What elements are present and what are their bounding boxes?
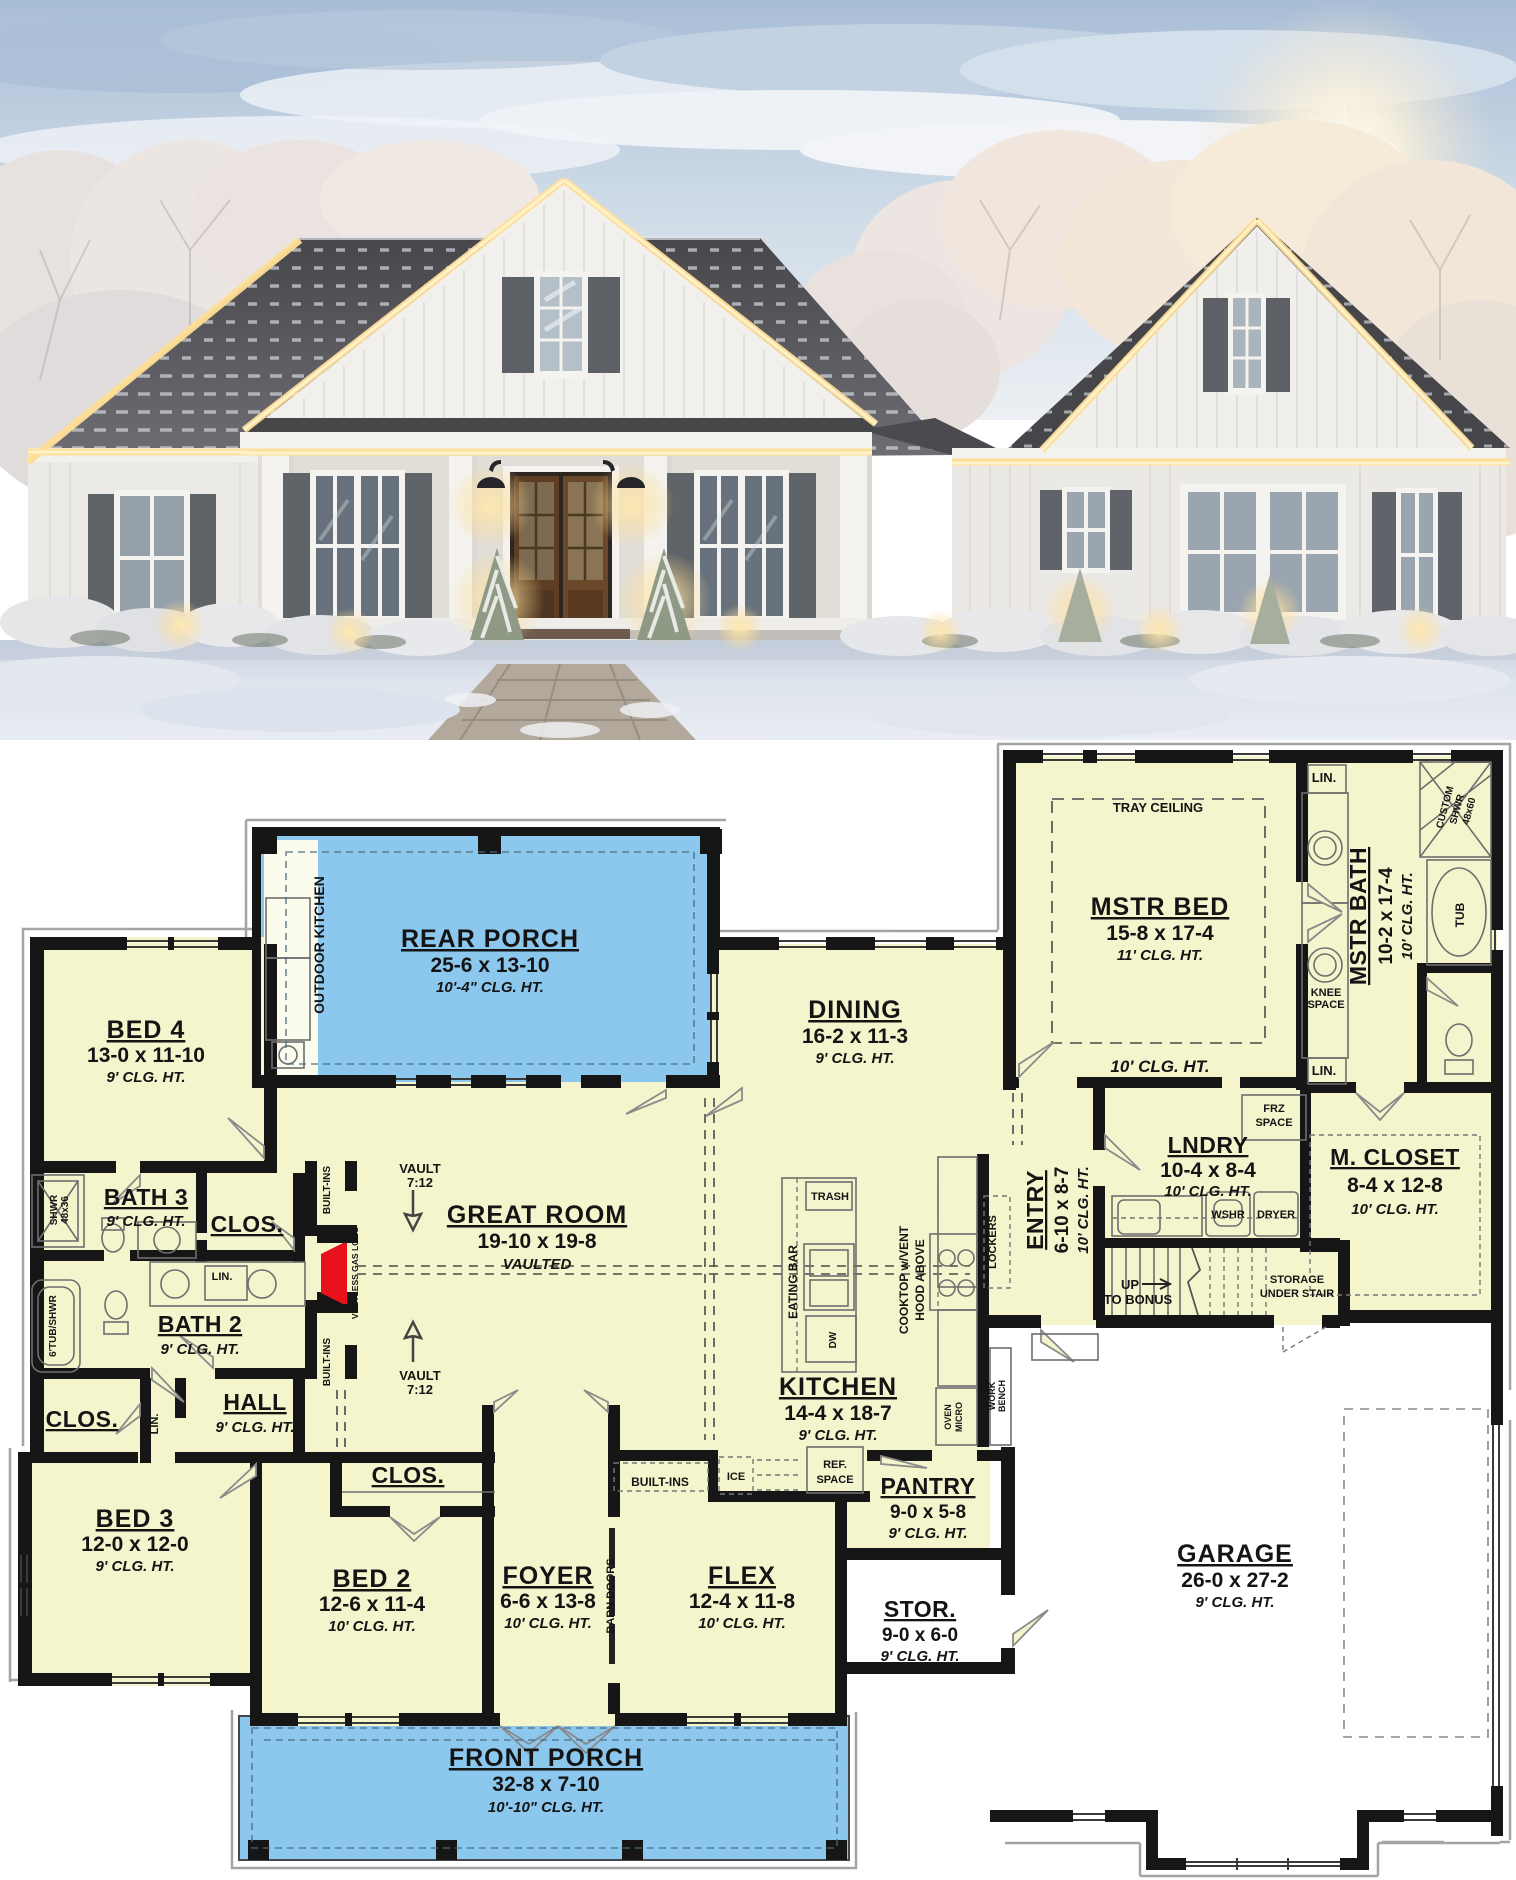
svg-text:FOYER: FOYER [502,1562,593,1590]
svg-text:CLOS.: CLOS. [372,1462,445,1488]
svg-text:REF.: REF. [823,1459,847,1471]
svg-text:BED 3: BED 3 [96,1505,175,1533]
svg-text:CLOS.: CLOS. [211,1211,284,1237]
svg-text:GARAGE: GARAGE [1177,1540,1293,1568]
svg-text:REAR PORCH: REAR PORCH [401,925,579,953]
svg-text:TO BONUS: TO BONUS [1104,1292,1173,1307]
svg-text:UP: UP [1121,1277,1139,1292]
svg-text:10' CLG. HT.: 10' CLG. HT. [1399,872,1416,959]
svg-text:9' CLG. HT.: 9' CLG. HT. [160,1341,239,1358]
svg-text:BATH 2: BATH 2 [158,1311,242,1337]
svg-text:BUILT-INS: BUILT-INS [631,1475,689,1489]
svg-text:VENTLESS GAS LOGS: VENTLESS GAS LOGS [350,1227,360,1319]
svg-text:LIN.: LIN. [212,1271,233,1283]
svg-text:9' CLG. HT.: 9' CLG. HT. [815,1050,894,1067]
svg-text:MICRO: MICRO [954,1402,964,1432]
svg-text:32-8 x 7-10: 32-8 x 7-10 [492,1773,599,1796]
svg-text:9' CLG. HT.: 9' CLG. HT. [880,1648,959,1665]
svg-text:12-4 x 11-8: 12-4 x 11-8 [689,1590,796,1613]
svg-text:LIN.: LIN. [1312,770,1337,785]
svg-text:KNEE: KNEE [1311,987,1342,999]
svg-text:GREAT ROOM: GREAT ROOM [447,1201,627,1229]
svg-text:7:12: 7:12 [407,1175,433,1190]
svg-text:9' CLG. HT.: 9' CLG. HT. [888,1525,967,1542]
svg-text:CLOS.: CLOS. [46,1406,119,1432]
svg-text:EATING BAR: EATING BAR [786,1245,800,1319]
svg-text:15-8 x 17-4: 15-8 x 17-4 [1106,922,1214,945]
svg-text:BENCH: BENCH [997,1380,1007,1412]
svg-text:9' CLG. HT.: 9' CLG. HT. [106,1069,185,1086]
svg-text:6'TUB/SHWR: 6'TUB/SHWR [48,1294,59,1357]
svg-text:10-4 x 8-4: 10-4 x 8-4 [1160,1159,1256,1182]
svg-text:FRZ: FRZ [1263,1103,1285,1115]
svg-text:10'-10" CLG. HT.: 10'-10" CLG. HT. [488,1799,604,1816]
svg-text:SHWR: SHWR [49,1194,60,1225]
svg-text:M. CLOSET: M. CLOSET [1330,1144,1460,1170]
svg-text:TRAY CEILING: TRAY CEILING [1113,800,1203,815]
svg-text:SPACE: SPACE [1255,1117,1292,1129]
svg-text:LNDRY: LNDRY [1168,1132,1249,1158]
svg-text:16-2 x 11-3: 16-2 x 11-3 [802,1025,908,1048]
svg-text:UNDER STAIR: UNDER STAIR [1260,1288,1334,1300]
svg-text:9-0 x 5-8: 9-0 x 5-8 [890,1502,966,1523]
svg-text:STOR.: STOR. [884,1596,956,1622]
svg-text:19-10 x 19-8: 19-10 x 19-8 [477,1230,596,1253]
svg-text:DINING: DINING [808,996,902,1024]
svg-text:WSHR: WSHR [1211,1209,1245,1221]
svg-text:7:12: 7:12 [407,1382,433,1397]
svg-text:12-6 x 11-4: 12-6 x 11-4 [319,1593,426,1616]
svg-text:BUILT-INS: BUILT-INS [322,1166,333,1214]
svg-text:ENTRY: ENTRY [1022,1170,1048,1250]
svg-text:OVEN: OVEN [943,1404,953,1430]
svg-text:25-6 x 13-10: 25-6 x 13-10 [430,954,549,977]
svg-text:10'-4" CLG. HT.: 10'-4" CLG. HT. [436,979,544,996]
svg-text:DRYER: DRYER [1257,1209,1295,1221]
svg-text:13-0 x 11-10: 13-0 x 11-10 [87,1044,205,1067]
svg-text:BARN DOORS: BARN DOORS [605,1558,617,1633]
svg-text:DW: DW [828,1331,839,1348]
svg-text:VAULTED: VAULTED [503,1256,572,1273]
svg-text:8-4 x 12-8: 8-4 x 12-8 [1347,1174,1443,1197]
svg-text:11' CLG. HT.: 11' CLG. HT. [1117,947,1203,964]
svg-text:9' CLG. HT.: 9' CLG. HT. [106,1213,185,1230]
svg-text:FRONT PORCH: FRONT PORCH [449,1744,643,1772]
svg-text:10-2 x 17-4: 10-2 x 17-4 [1376,867,1397,965]
svg-text:MSTR BATH: MSTR BATH [1345,847,1371,985]
svg-text:LOCKERS: LOCKERS [987,1215,999,1269]
svg-text:9' CLG. HT.: 9' CLG. HT. [1195,1594,1274,1611]
svg-text:9' CLG. HT.: 9' CLG. HT. [798,1427,877,1444]
svg-text:26-0 x 27-2: 26-0 x 27-2 [1181,1569,1288,1592]
svg-text:BED 2: BED 2 [333,1565,412,1593]
svg-text:MSTR BED: MSTR BED [1091,893,1230,921]
svg-text:TRASH: TRASH [811,1191,849,1203]
svg-text:BED 4: BED 4 [107,1016,186,1044]
svg-text:OUTDOOR KITCHEN: OUTDOOR KITCHEN [311,876,327,1014]
svg-text:SPACE: SPACE [1307,999,1344,1011]
svg-text:10' CLG. HT.: 10' CLG. HT. [1075,1166,1092,1253]
svg-text:COOKTOP w/VENT: COOKTOP w/VENT [897,1225,911,1334]
svg-text:VAULT: VAULT [399,1161,440,1176]
svg-text:FLEX: FLEX [708,1562,776,1590]
svg-text:HALL: HALL [223,1389,286,1415]
svg-text:VAULT: VAULT [399,1368,440,1383]
svg-text:KITCHEN: KITCHEN [779,1373,897,1401]
svg-text:BUILT-INS: BUILT-INS [322,1338,333,1386]
svg-text:12-0 x 12-0: 12-0 x 12-0 [81,1533,188,1556]
svg-text:10' CLG. HT.: 10' CLG. HT. [1164,1183,1251,1200]
svg-text:10' CLG. HT.: 10' CLG. HT. [328,1618,415,1635]
svg-text:14-4 x 18-7: 14-4 x 18-7 [784,1402,891,1425]
svg-text:10' CLG. HT.: 10' CLG. HT. [1110,1057,1209,1076]
svg-text:HOOD ABOVE: HOOD ABOVE [913,1239,927,1321]
svg-text:TUB: TUB [1453,902,1467,927]
svg-text:10' CLG. HT.: 10' CLG. HT. [698,1615,785,1632]
svg-text:LIN.: LIN. [149,1414,161,1435]
svg-text:SPACE: SPACE [816,1474,853,1486]
svg-text:6-10 x 8-7: 6-10 x 8-7 [1052,1167,1073,1254]
svg-text:WORK: WORK [987,1381,997,1410]
svg-text:9' CLG. HT.: 9' CLG. HT. [95,1558,174,1575]
svg-text:BATH 3: BATH 3 [104,1184,188,1210]
svg-text:9-0 x 6-0: 9-0 x 6-0 [882,1625,958,1646]
svg-text:ICE: ICE [727,1471,745,1483]
svg-text:STORAGE: STORAGE [1270,1274,1324,1286]
svg-text:10' CLG. HT.: 10' CLG. HT. [504,1615,591,1632]
svg-text:LIN.: LIN. [1312,1063,1337,1078]
svg-text:48x36: 48x36 [60,1196,71,1224]
svg-text:6-6 x 13-8: 6-6 x 13-8 [500,1590,596,1613]
svg-text:PANTRY: PANTRY [881,1473,976,1499]
svg-text:10' CLG. HT.: 10' CLG. HT. [1351,1201,1438,1218]
svg-text:9' CLG. HT.: 9' CLG. HT. [215,1419,294,1436]
